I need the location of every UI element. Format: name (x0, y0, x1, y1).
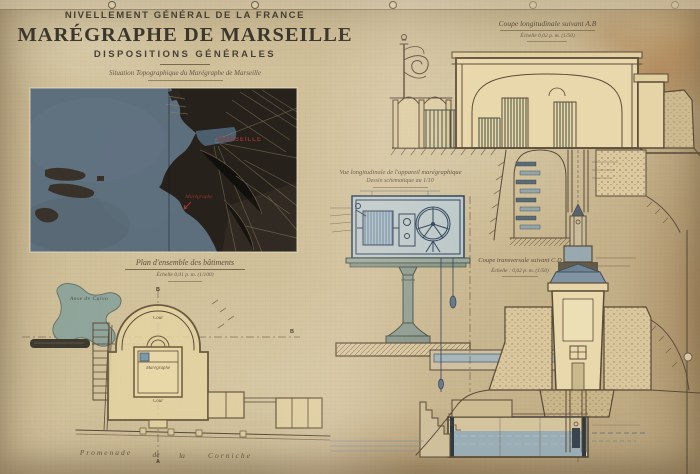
apparatus-subtitle: Dessin schématique au 1/10 (340, 178, 460, 185)
map-gauge-label: Marégraphe (176, 194, 222, 200)
section-marker-b-right: B (286, 329, 298, 335)
subtitle-rule (160, 64, 210, 65)
coupe-ab-scale-rule (527, 41, 567, 42)
plan-court-label-bottom: Cour (146, 399, 170, 405)
coupe-cd-scale-rule (502, 276, 538, 277)
maregraphe-poster: NIVELLEMENT GÉNÉRAL DE LA FRANCE MARÉGRA… (0, 0, 700, 474)
plan-cove-label: Anse de Calvo (60, 296, 118, 302)
apparatus-title: Vue longitudinale de l'appareil marégrap… (328, 169, 473, 176)
apparatus-title-rule (373, 187, 428, 188)
promenade-word-4: Corniche (198, 452, 262, 461)
plan-scale: Échelle 0,01 p. m. (1/100) (135, 272, 235, 278)
plan-scale-rule (168, 281, 202, 282)
coupe-cd-title: Coupe transversale suivant C.D (455, 257, 585, 264)
coupe-ab-title-rule (500, 30, 595, 31)
map-city-label: MARSEILLE (212, 137, 268, 144)
spiral-staircase (516, 162, 540, 229)
plan-title: Plan d'ensemble des bâtiments (85, 258, 285, 267)
page-title: MARÉGRAPHE DE MARSEILLE (10, 24, 360, 48)
coupe-cd-scale: Échelle : 0,02 p. m. (1/50) (470, 268, 570, 274)
map-caption-rule (148, 80, 223, 81)
lamp-post (400, 35, 428, 99)
promenade-word-3: la (173, 452, 191, 461)
map-caption: Situation Topographique du Marégraphe de… (65, 69, 305, 77)
page-subtitle: DISPOSITIONS GÉNÉRALES (15, 50, 355, 61)
coupe-cd-art (330, 264, 700, 462)
section-marker-b-top: B (152, 287, 164, 293)
topo-map-art (20, 88, 297, 253)
promenade-word-1: Promenade (76, 449, 136, 458)
org-line: NIVELLEMENT GÉNÉRAL DE LA FRANCE (15, 11, 355, 22)
coupe-ab-scale: Échelle 0,02 p. m. (1/50) (485, 33, 610, 39)
site-plan-art (22, 284, 330, 466)
promenade-word-2: de (146, 451, 166, 460)
section-marker-a-bottom: A (152, 459, 164, 465)
plan-building-label: Marégraphe (135, 366, 181, 372)
plan-court-label-top: Cour (146, 316, 170, 322)
coupe-ab-title: Coupe longitudinale suivant A.B (455, 20, 640, 29)
plan-title-rule (125, 269, 245, 270)
